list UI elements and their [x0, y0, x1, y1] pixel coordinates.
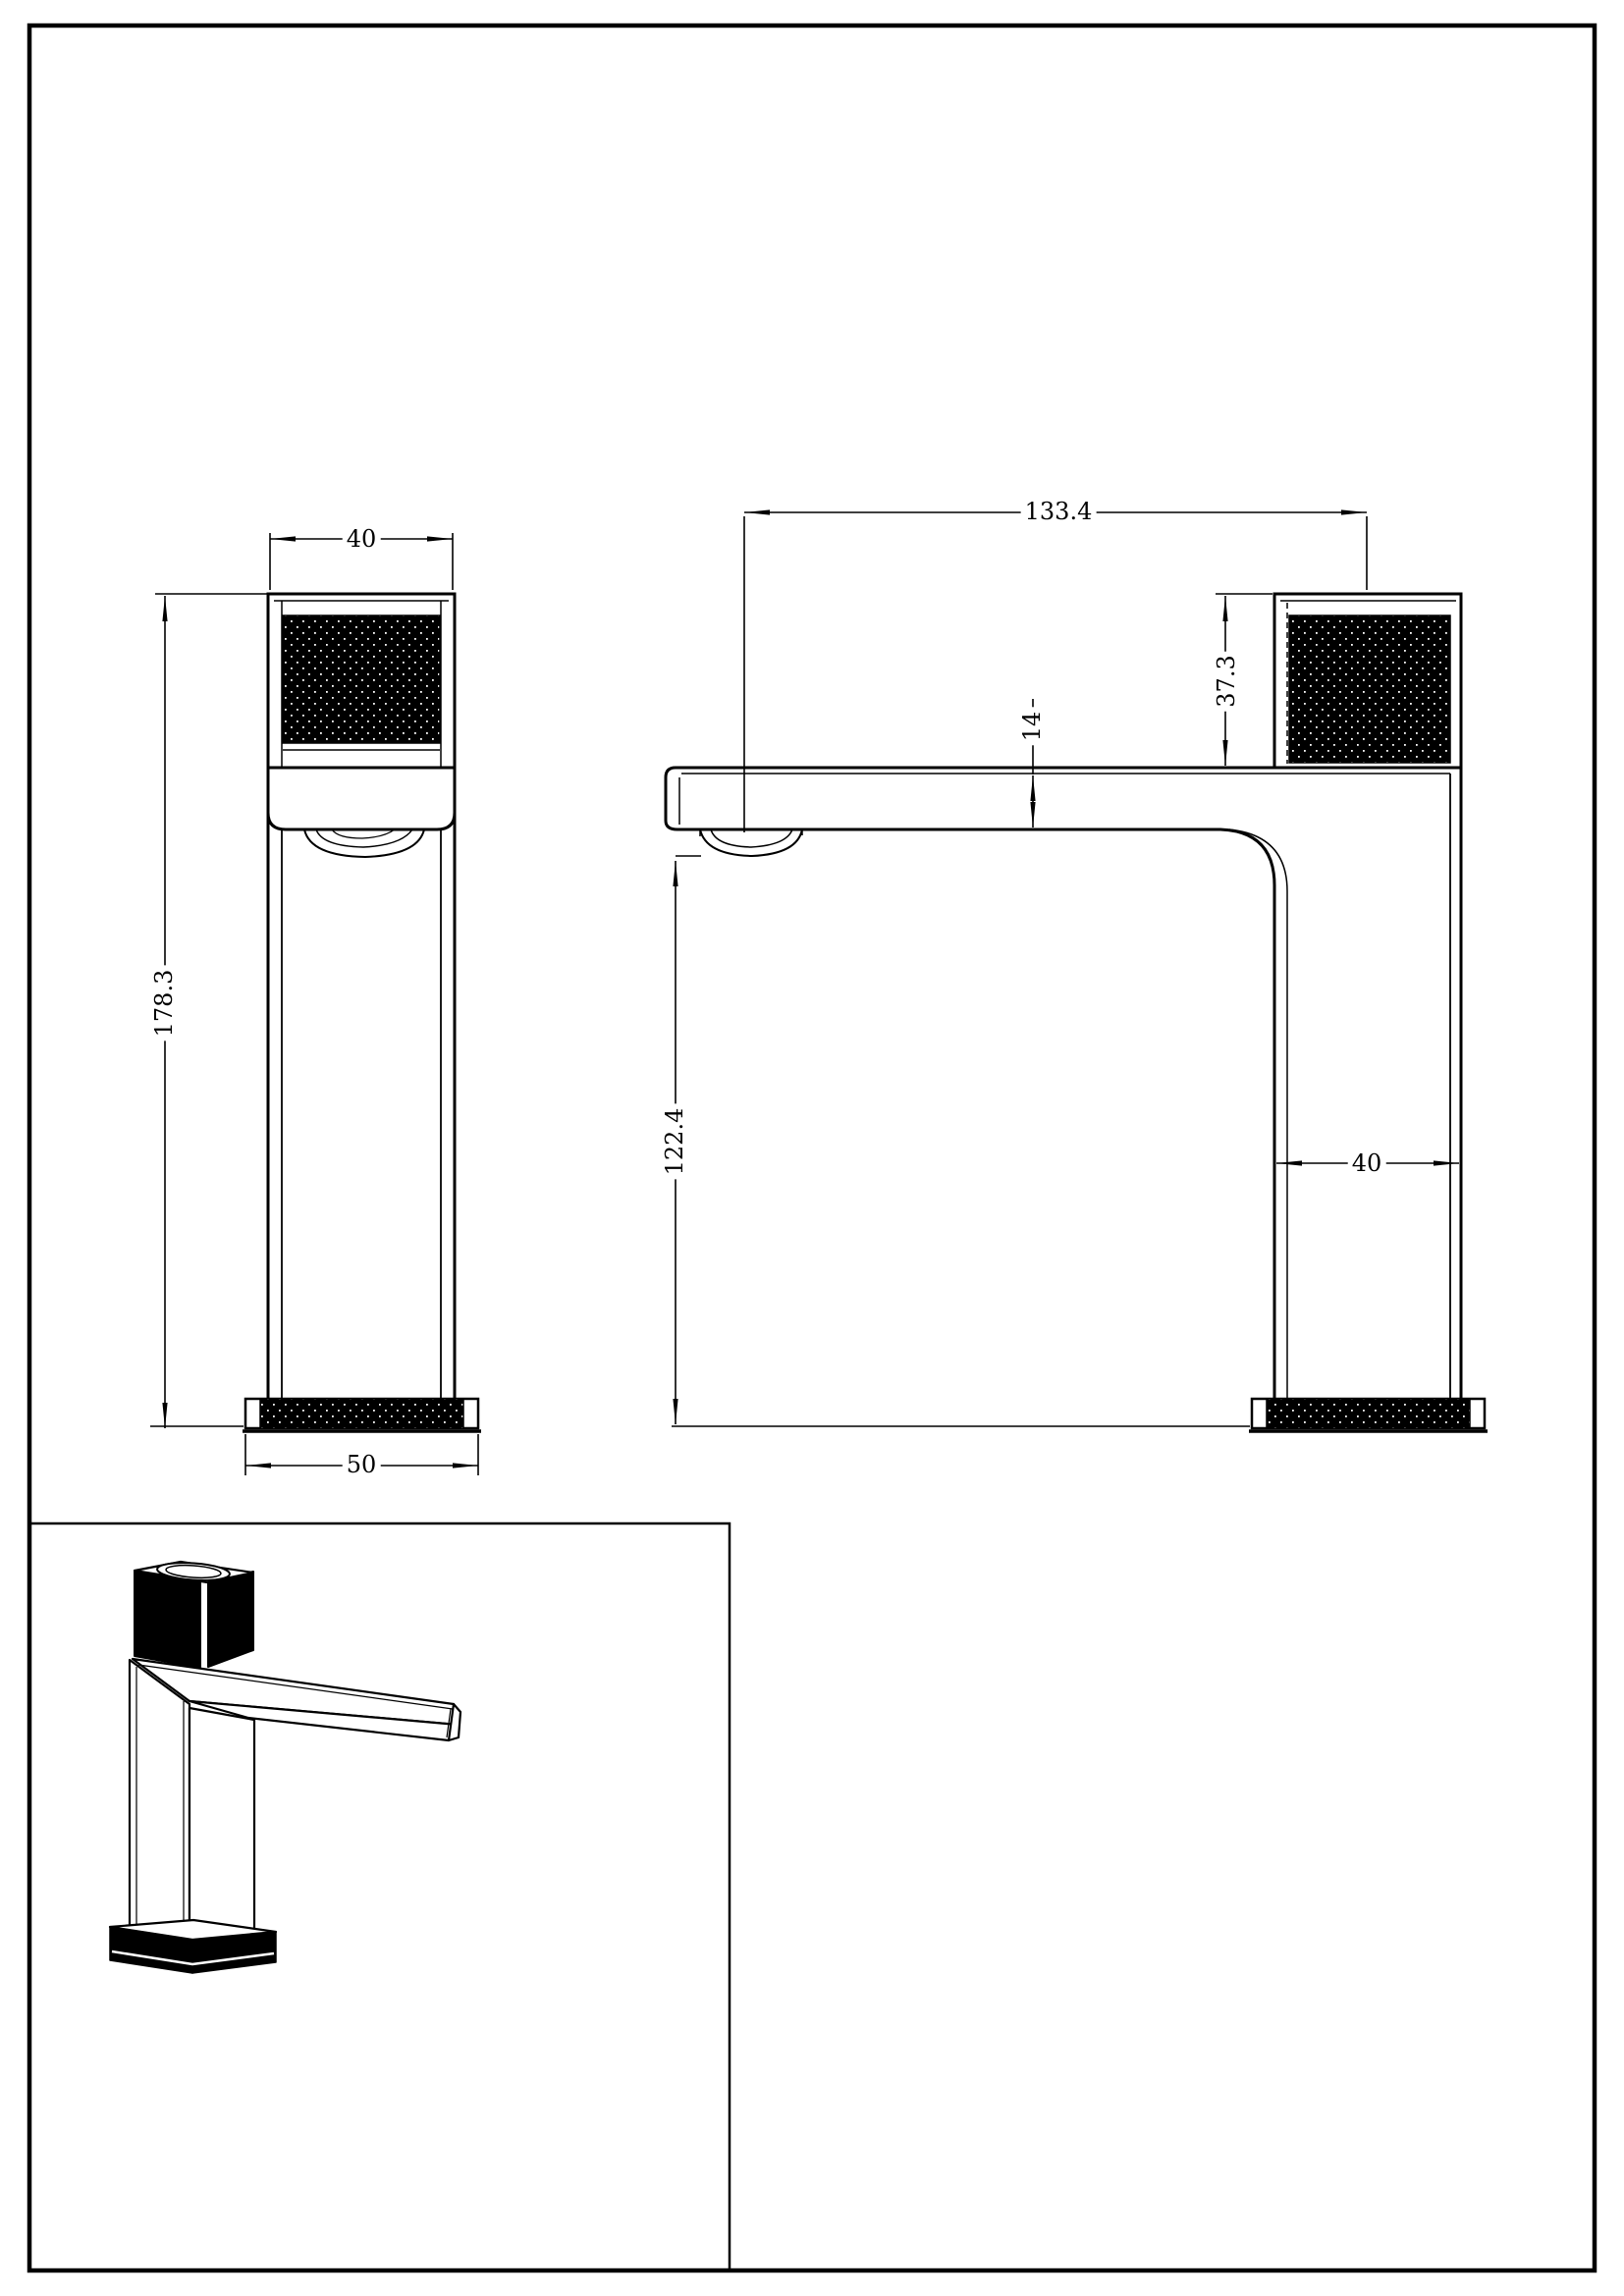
technical-drawing — [0, 0, 1624, 2296]
iso-column-left-face — [130, 1660, 189, 1942]
front-spout-end — [268, 768, 455, 857]
side-handle-knurl — [1289, 615, 1450, 763]
iso-handle-right-face — [208, 1572, 253, 1667]
dim-side-body-depth: 40 — [1348, 1150, 1386, 1176]
side-body-column — [1450, 768, 1461, 1399]
dim-side-overall-length: 133.4 — [1021, 499, 1097, 524]
front-aerator — [304, 829, 424, 857]
front-handle — [268, 594, 455, 768]
dim-front-base-width: 50 — [343, 1452, 381, 1477]
side-handle — [1274, 594, 1461, 768]
side-base-knurl — [1267, 1399, 1470, 1428]
iso-column-right-face — [189, 1708, 254, 1942]
side-view — [666, 512, 1488, 1431]
dim-side-spout-clearance: 122.4 — [662, 1104, 687, 1180]
dim-side-spout-thickness: 14 — [1019, 708, 1045, 746]
front-view — [150, 533, 481, 1475]
side-aerator — [700, 829, 802, 856]
front-body-column — [268, 768, 455, 1399]
dim-side-handle-height: 37.3 — [1214, 651, 1239, 711]
dim-front-overall-height: 178.3 — [151, 966, 177, 1041]
side-base — [1249, 1399, 1488, 1431]
side-spout-arm — [666, 768, 1461, 1399]
drawing-sheet: 40 178.3 50 133.4 37.3 14 122.4 40 — [0, 0, 1624, 2296]
iso-handle — [135, 1561, 253, 1668]
iso-base-right-face — [192, 1932, 276, 1973]
iso-base — [110, 1920, 276, 1973]
dim-front-handle-width: 40 — [343, 526, 381, 552]
front-base-knurl — [260, 1399, 463, 1428]
isometric-view — [110, 1561, 460, 1973]
front-handle-knurl — [283, 615, 440, 743]
iso-handle-front-face — [135, 1571, 200, 1668]
front-base — [243, 1399, 481, 1431]
